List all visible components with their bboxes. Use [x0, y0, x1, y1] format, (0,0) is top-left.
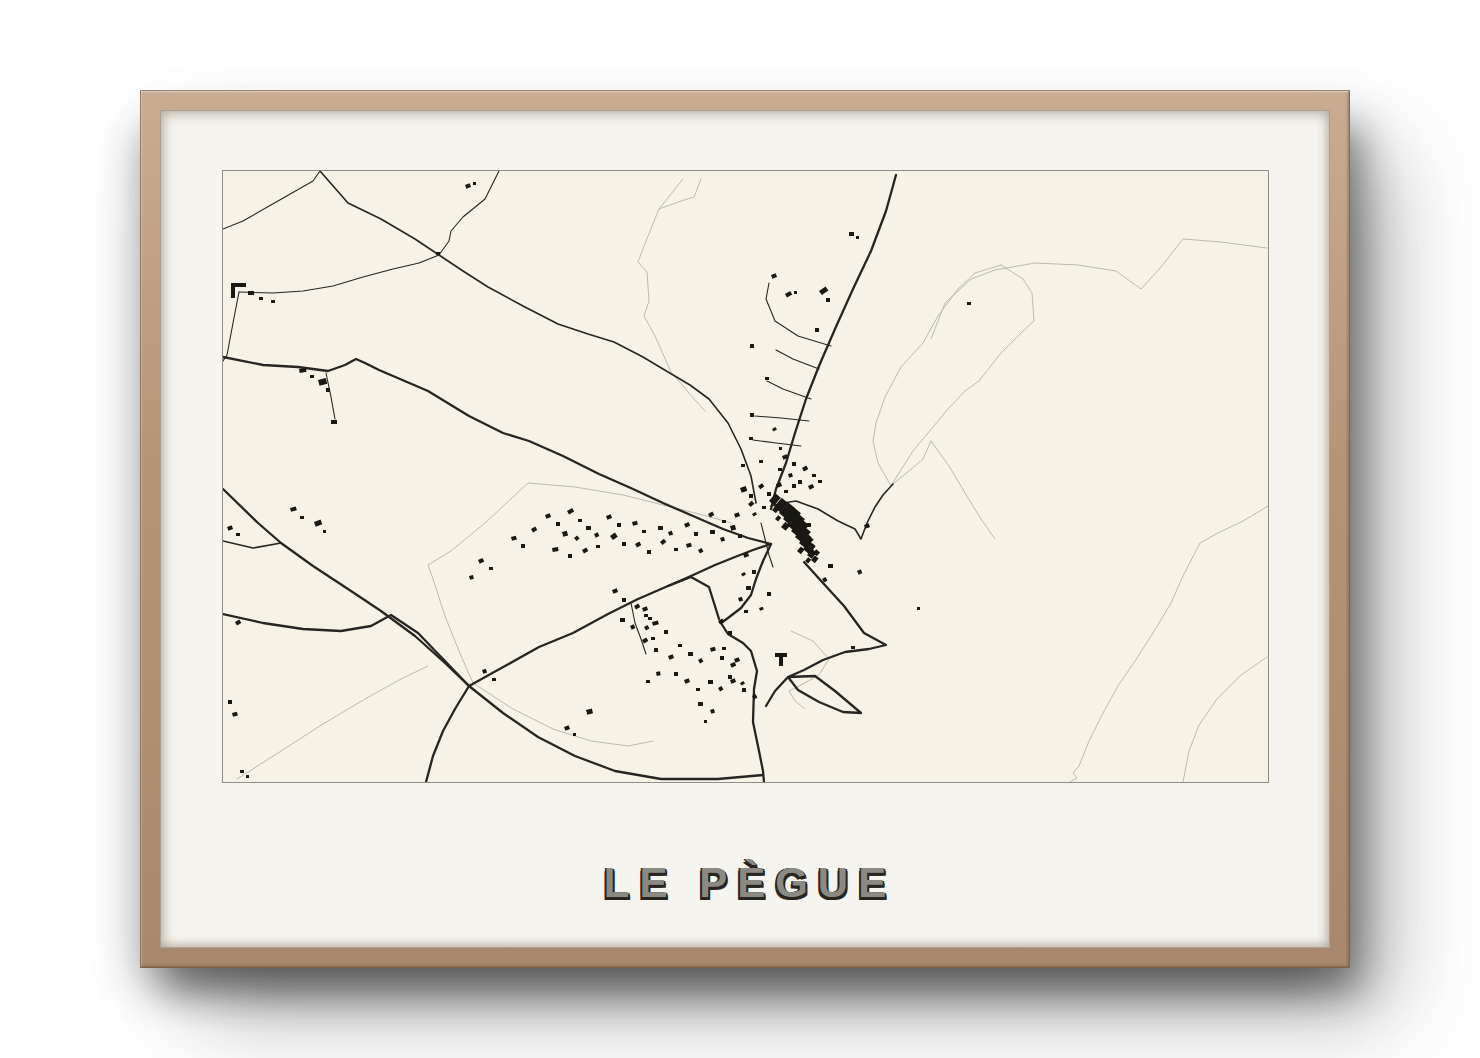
- map-building: [232, 712, 238, 717]
- map-building: [668, 654, 674, 659]
- map-building: [771, 273, 777, 278]
- map-main-roads: [223, 489, 469, 686]
- map-building: [746, 586, 751, 590]
- map-building: [573, 733, 576, 736]
- map-building: [698, 658, 703, 663]
- map-building: [248, 291, 254, 295]
- map-building: [738, 534, 742, 538]
- map-building: [562, 531, 568, 537]
- map-building: [788, 473, 793, 478]
- map-building: [552, 547, 559, 552]
- map-building: [684, 522, 690, 528]
- map-building: [642, 606, 648, 611]
- map-building: [231, 287, 235, 298]
- map-building: [750, 344, 754, 348]
- map-building: [740, 681, 745, 686]
- map-building: [318, 378, 327, 386]
- map-main-roads: [721, 544, 771, 782]
- map-building: [710, 530, 715, 534]
- map-building: [596, 545, 600, 548]
- map-building: [586, 708, 593, 714]
- map-building: [752, 512, 757, 517]
- map-building: [730, 662, 736, 668]
- map-building: [259, 297, 263, 300]
- map-building: [635, 542, 641, 548]
- map-building: [765, 377, 769, 380]
- poster-title: LE PÈGUE: [161, 859, 1329, 907]
- map-building: [730, 678, 736, 683]
- map-building: [749, 437, 753, 440]
- map-building: [794, 291, 797, 294]
- map-building: [634, 604, 640, 610]
- map-main-roads: [469, 577, 719, 686]
- map-building: [826, 298, 830, 302]
- map-building: [492, 678, 496, 681]
- map-building: [436, 252, 440, 255]
- map-thin-roads: [776, 350, 819, 369]
- map-building: [228, 700, 232, 704]
- map-building: [808, 484, 814, 490]
- map-building: [849, 232, 854, 236]
- map-faint-boundaries: [237, 666, 428, 779]
- map-building: [469, 575, 474, 580]
- map-building: [574, 535, 580, 541]
- map-building: [231, 283, 246, 287]
- map-building: [622, 598, 626, 602]
- map-building: [967, 302, 971, 305]
- map-building: [759, 460, 763, 463]
- map-building: [227, 525, 233, 530]
- map-building: [632, 521, 638, 526]
- map-building: [734, 657, 740, 662]
- map-building: [240, 770, 244, 773]
- map-building: [617, 523, 621, 527]
- map-building: [482, 669, 487, 674]
- map-building: [728, 675, 732, 679]
- map-medium-roads: [223, 541, 281, 548]
- map-building: [648, 617, 652, 620]
- map-building: [331, 420, 337, 424]
- map-building: [730, 525, 736, 531]
- map-faint-boundaries: [638, 179, 705, 411]
- map-building: [704, 720, 707, 723]
- map-building: [792, 484, 796, 488]
- map-building: [752, 570, 756, 574]
- map-building: [812, 474, 816, 477]
- map-building: [750, 413, 754, 417]
- map-faint-boundaries: [893, 441, 931, 484]
- map-building: [722, 647, 726, 650]
- map-building: [586, 526, 591, 530]
- map-building: [762, 506, 766, 509]
- map-building: [698, 548, 703, 553]
- map-building: [300, 516, 304, 519]
- map-building: [798, 480, 802, 484]
- map-faint-boundaries: [1183, 657, 1267, 782]
- map-building: [654, 648, 658, 652]
- map-building: [594, 532, 599, 537]
- map-thin-roads: [767, 381, 811, 399]
- map-building: [652, 620, 659, 625]
- map-building: [647, 550, 651, 554]
- map-building: [856, 236, 859, 239]
- map-building: [728, 631, 732, 635]
- map-building: [578, 519, 582, 522]
- map-building: [767, 592, 771, 596]
- map-building: [718, 686, 723, 691]
- map-building: [792, 462, 796, 466]
- map-faint-boundaries: [428, 483, 671, 683]
- map-building: [694, 532, 698, 536]
- map-building: [696, 688, 700, 691]
- map-building: [698, 702, 703, 706]
- commune-road-map-figure: [223, 171, 1268, 782]
- map-building: [851, 646, 855, 649]
- map-building: [271, 300, 275, 303]
- map-building: [620, 618, 625, 622]
- map-building: [658, 526, 663, 530]
- map-building: [819, 286, 828, 295]
- map-building: [246, 775, 249, 778]
- map-faint-boundaries: [473, 683, 653, 746]
- map-building: [797, 546, 805, 554]
- map-building: [612, 588, 618, 593]
- map-building: [622, 542, 626, 546]
- map-building: [656, 671, 661, 676]
- map-thin-roads: [239, 255, 439, 293]
- map-building: [758, 483, 764, 489]
- map-building: [779, 447, 782, 450]
- map-building: [606, 514, 612, 519]
- map-building: [917, 607, 920, 610]
- map-building: [323, 530, 326, 533]
- map-building: [815, 328, 819, 332]
- map-building: [664, 630, 668, 634]
- map-building: [644, 614, 648, 617]
- map-building: [722, 520, 726, 523]
- map-building: [772, 427, 777, 432]
- map-panel: [222, 170, 1269, 783]
- map-building: [310, 375, 314, 378]
- poster-mat: LE PÈGUE: [160, 110, 1330, 948]
- map-main-roads: [766, 562, 886, 713]
- map-building: [775, 653, 787, 657]
- map-building: [299, 368, 307, 373]
- map-medium-roads: [320, 171, 756, 503]
- map-building: [748, 501, 754, 507]
- map-building: [802, 466, 808, 472]
- map-building: [478, 558, 484, 564]
- map-building: [749, 494, 753, 498]
- map-building: [778, 468, 782, 471]
- photo-of-framed-map-poster: LE PÈGUE: [0, 0, 1480, 1058]
- map-building: [326, 388, 330, 392]
- map-thin-roads: [326, 373, 335, 419]
- map-main-roads: [426, 686, 469, 782]
- map-faint-boundaries: [931, 441, 995, 539]
- map-building: [742, 688, 746, 692]
- map-building: [741, 464, 745, 467]
- map-building: [710, 709, 715, 714]
- map-building: [236, 533, 240, 536]
- map-building: [807, 523, 811, 527]
- map-building: [314, 520, 322, 527]
- map-building: [660, 539, 666, 545]
- map-building: [738, 597, 743, 602]
- map-building: [759, 607, 764, 611]
- map-building: [582, 548, 588, 554]
- map-building: [734, 512, 740, 517]
- map-building: [290, 506, 297, 511]
- map-building: [674, 548, 678, 551]
- map-faint-boundaries: [1070, 506, 1268, 782]
- map-building: [564, 725, 570, 730]
- map-building: [688, 652, 693, 656]
- map-building: [674, 672, 678, 676]
- map-building: [767, 492, 771, 496]
- map-building: [779, 657, 783, 666]
- map-building: [708, 680, 713, 684]
- map-building: [668, 531, 673, 536]
- map-building: [556, 522, 560, 526]
- map-building: [610, 533, 618, 541]
- map-building: [651, 637, 655, 640]
- map-building: [473, 182, 476, 185]
- map-thin-roads: [223, 292, 239, 361]
- map-building: [740, 486, 747, 493]
- map-building: [465, 183, 471, 188]
- map-building: [646, 680, 650, 683]
- map-building: [678, 644, 682, 647]
- wood-picture-frame: LE PÈGUE: [140, 90, 1350, 968]
- map-building: [720, 537, 725, 542]
- map-building: [531, 527, 537, 533]
- map-building: [567, 508, 574, 514]
- map-building: [511, 536, 517, 541]
- map-building: [818, 480, 822, 483]
- map-building: [720, 656, 724, 660]
- map-building: [785, 291, 792, 297]
- map-building: [521, 544, 525, 548]
- map-building: [644, 625, 649, 630]
- map-building: [710, 647, 716, 652]
- map-building: [828, 564, 833, 568]
- map-building: [630, 624, 635, 629]
- map-building: [568, 554, 572, 558]
- map-faint-boundaries: [873, 265, 1034, 486]
- map-building: [741, 572, 746, 577]
- map-building: [545, 513, 551, 518]
- map-building: [686, 543, 692, 548]
- map-building: [775, 515, 781, 521]
- map-building: [642, 530, 646, 533]
- map-building: [235, 620, 241, 626]
- map-thin-roads: [223, 171, 320, 229]
- map-building: [489, 567, 493, 570]
- map-building: [857, 569, 862, 574]
- map-building: [684, 678, 690, 683]
- map-building: [642, 638, 648, 644]
- map-building: [784, 490, 788, 493]
- map-faint-boundaries: [931, 239, 1267, 339]
- map-main-roads: [469, 686, 763, 779]
- map-building: [744, 610, 748, 613]
